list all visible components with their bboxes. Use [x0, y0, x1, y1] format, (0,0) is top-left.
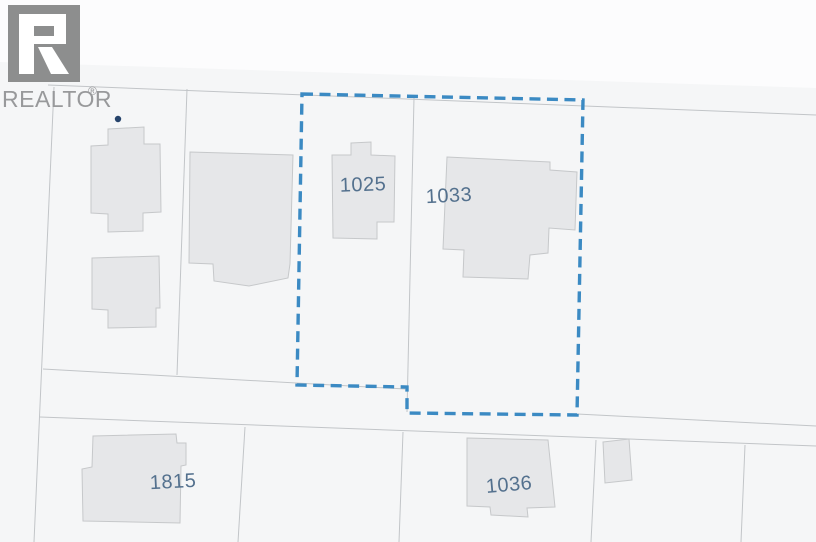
building-footprint — [603, 439, 632, 483]
parcel-label-1036: 1036 — [485, 472, 533, 498]
parcel-label-1033: 1033 — [425, 184, 473, 208]
registered-trademark-symbol: ® — [88, 84, 97, 98]
parcel-map: 1025 1033 1815 1036 REALTOR ® — [0, 0, 816, 542]
location-dot — [115, 116, 121, 122]
parcel-label-1025: 1025 — [339, 173, 386, 197]
parcel-label-1815: 1815 — [149, 470, 197, 494]
